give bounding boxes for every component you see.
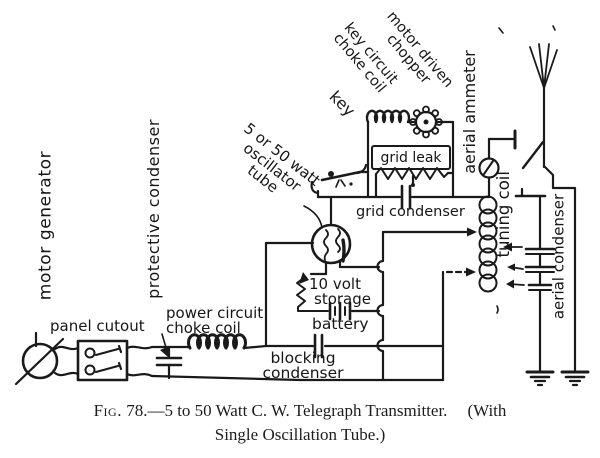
figure-caption-line1: Fig. 78.—5 to 50 Watt C. W. Telegraph Tr… (0, 401, 600, 421)
label-protective-condenser: protective condenser (146, 84, 162, 334)
label-tuning-coil: tuning coil (496, 144, 513, 284)
ground-icon (527, 372, 553, 385)
label-battery: battery (312, 317, 369, 333)
label-storage-battery: 10 volt storage (309, 277, 371, 307)
plate-return-wire (378, 232, 383, 380)
ground-icon (562, 372, 588, 385)
motor-generator-symbol (16, 333, 78, 384)
plate-tap-wire (383, 228, 477, 237)
key-choke-coil-symbol (367, 111, 409, 122)
label-panel-cutout: panel cutout (50, 319, 145, 334)
protective-condenser-symbol (157, 334, 181, 378)
label-grid-leak: grid leak (372, 146, 450, 169)
label-motor-generator: motor generator (38, 126, 55, 326)
label-power-circuit-choke-coil: power circuit choke coil (166, 306, 263, 336)
label-aerial-condenser: aerial condenser (552, 172, 567, 342)
figure-caption-line2: Single Oscillation Tube.) (0, 425, 600, 445)
panel-cutout-box (78, 341, 127, 380)
antenna-icon (530, 44, 557, 167)
filament-tap-wire (443, 268, 476, 381)
label-grid-condenser: grid condenser (356, 205, 465, 220)
figure-78-circuit-diagram: motor generator protective condenser pan… (0, 0, 600, 458)
figure-number: Fig. (94, 401, 122, 420)
label-blocking-condenser: blocking condenser (260, 351, 346, 380)
label-aerial-ammeter: aerial ammeter (462, 27, 478, 197)
